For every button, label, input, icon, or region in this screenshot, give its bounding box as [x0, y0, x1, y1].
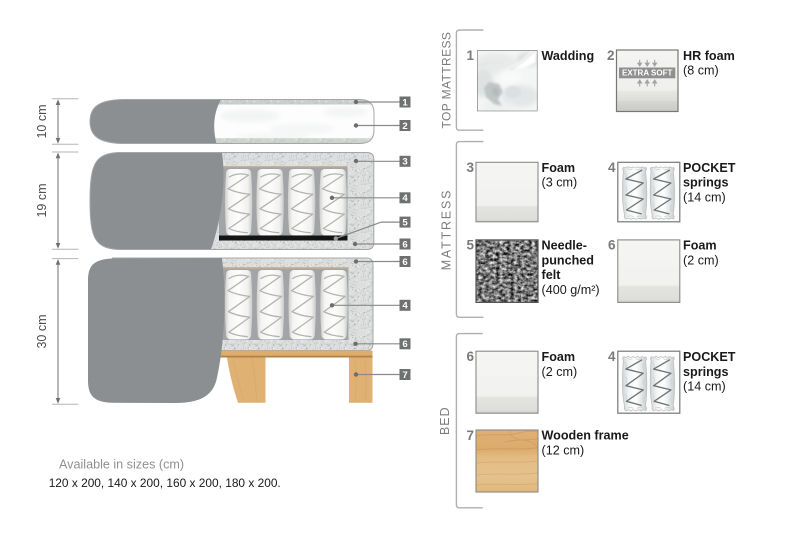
svg-text:felt: felt	[542, 268, 562, 282]
svg-text:EXTRA SOFT: EXTRA SOFT	[622, 69, 672, 78]
svg-text:punched: punched	[542, 253, 594, 267]
svg-text:7: 7	[466, 428, 474, 443]
svg-text:2: 2	[607, 48, 615, 63]
svg-text:(400 g/m²): (400 g/m²)	[542, 283, 600, 297]
svg-text:6: 6	[608, 238, 616, 253]
svg-text:19 cm: 19 cm	[35, 183, 49, 217]
svg-text:4: 4	[402, 193, 408, 204]
svg-text:(2 cm): (2 cm)	[683, 253, 719, 267]
svg-text:Foam: Foam	[683, 239, 717, 253]
svg-text:Foam: Foam	[542, 161, 576, 175]
svg-text:7: 7	[402, 370, 407, 381]
svg-text:30 cm: 30 cm	[35, 314, 49, 348]
svg-text:5: 5	[466, 238, 474, 253]
svg-text:2: 2	[402, 121, 407, 132]
svg-text:5: 5	[402, 218, 408, 229]
svg-text:BED: BED	[438, 406, 452, 435]
svg-text:POCKET: POCKET	[683, 350, 736, 364]
svg-text:springs: springs	[683, 176, 729, 190]
svg-text:TOP MATTRESS: TOP MATTRESS	[439, 32, 453, 129]
svg-text:Wadding: Wadding	[542, 49, 595, 63]
svg-text:POCKET: POCKET	[683, 161, 736, 175]
svg-text:120 x 200, 140 x 200, 160 x 20: 120 x 200, 140 x 200, 160 x 200, 180 x 2…	[49, 476, 281, 490]
svg-text:6: 6	[402, 257, 407, 268]
svg-text:6: 6	[466, 349, 474, 364]
svg-text:10 cm: 10 cm	[35, 104, 49, 138]
svg-text:(12 cm): (12 cm)	[542, 443, 585, 457]
svg-text:Wooden frame: Wooden frame	[542, 429, 629, 443]
svg-text:(2 cm): (2 cm)	[542, 365, 578, 379]
svg-text:4: 4	[402, 301, 408, 312]
svg-text:1: 1	[402, 97, 408, 108]
svg-text:HR foam: HR foam	[683, 49, 735, 63]
svg-text:4: 4	[608, 349, 616, 364]
svg-text:4: 4	[608, 160, 616, 175]
svg-text:3: 3	[466, 160, 474, 175]
svg-text:6: 6	[402, 239, 407, 250]
svg-text:(8 cm): (8 cm)	[683, 64, 719, 78]
svg-text:(14 cm): (14 cm)	[683, 380, 726, 394]
svg-text:Available in sizes (cm): Available in sizes (cm)	[59, 458, 184, 472]
svg-text:Needle-: Needle-	[542, 239, 588, 253]
svg-text:6: 6	[402, 339, 407, 350]
svg-text:MATTRESS: MATTRESS	[440, 189, 454, 271]
svg-text:Foam: Foam	[542, 350, 576, 364]
svg-text:1: 1	[466, 48, 474, 63]
svg-text:springs: springs	[683, 365, 729, 379]
svg-text:(14 cm): (14 cm)	[683, 190, 726, 204]
svg-text:(3 cm): (3 cm)	[542, 176, 578, 190]
svg-text:3: 3	[402, 157, 407, 168]
